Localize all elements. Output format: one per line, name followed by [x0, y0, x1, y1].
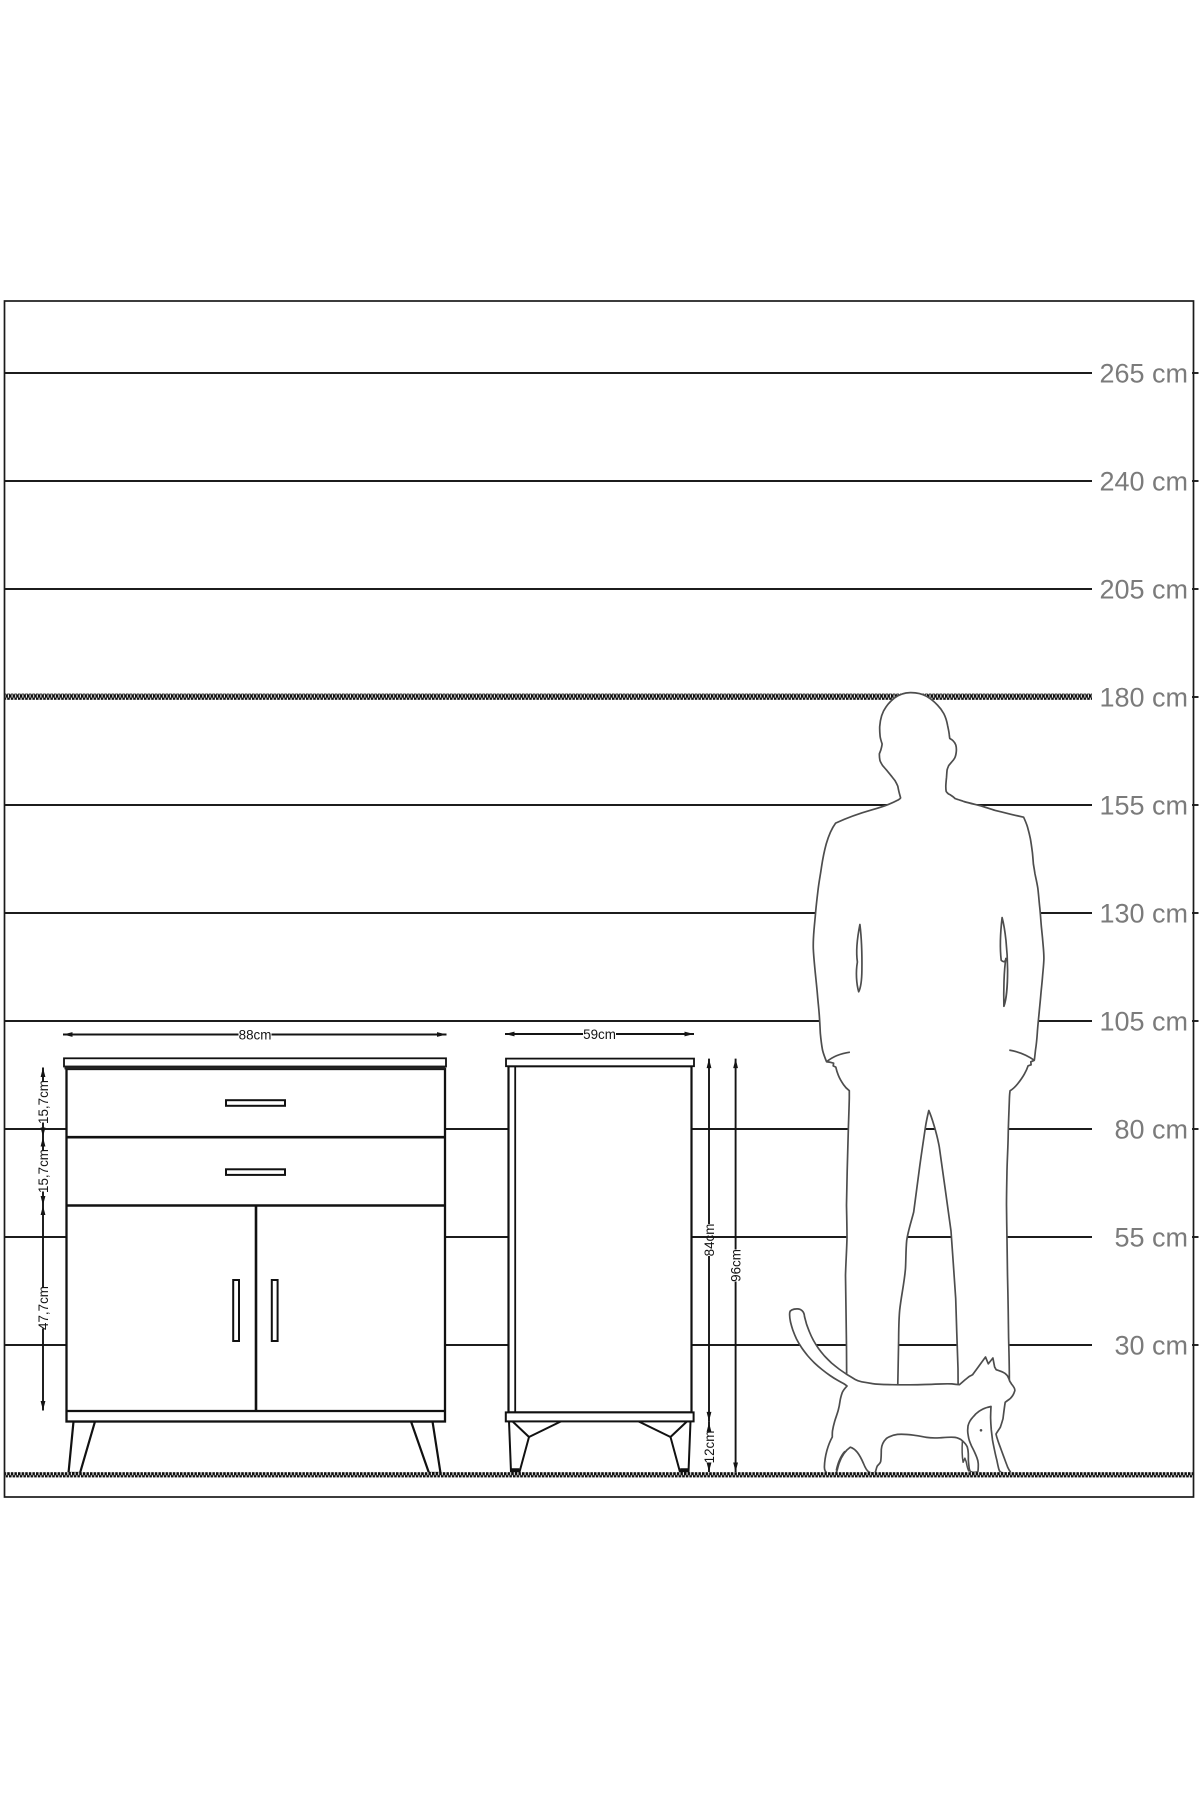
svg-text:30 cm: 30 cm	[1114, 1331, 1188, 1361]
svg-text:59cm: 59cm	[583, 1027, 616, 1042]
svg-text:205 cm: 205 cm	[1099, 575, 1188, 605]
svg-text:47,7cm: 47,7cm	[36, 1286, 51, 1330]
svg-text:130 cm: 130 cm	[1099, 899, 1188, 929]
svg-text:265 cm: 265 cm	[1099, 359, 1188, 389]
svg-text:15,7cm: 15,7cm	[36, 1149, 51, 1193]
svg-text:105 cm: 105 cm	[1099, 1007, 1188, 1037]
svg-text:96cm: 96cm	[728, 1249, 743, 1282]
svg-text:88cm: 88cm	[239, 1027, 272, 1042]
svg-text:180 cm: 180 cm	[1099, 683, 1188, 713]
svg-text:155 cm: 155 cm	[1099, 791, 1188, 821]
svg-text:240 cm: 240 cm	[1099, 467, 1188, 497]
svg-text:80 cm: 80 cm	[1114, 1115, 1188, 1145]
svg-text:12cm: 12cm	[702, 1431, 717, 1464]
svg-text:55 cm: 55 cm	[1114, 1223, 1188, 1253]
svg-text:84cm: 84cm	[702, 1224, 717, 1257]
svg-text:15,7cm: 15,7cm	[36, 1080, 51, 1124]
